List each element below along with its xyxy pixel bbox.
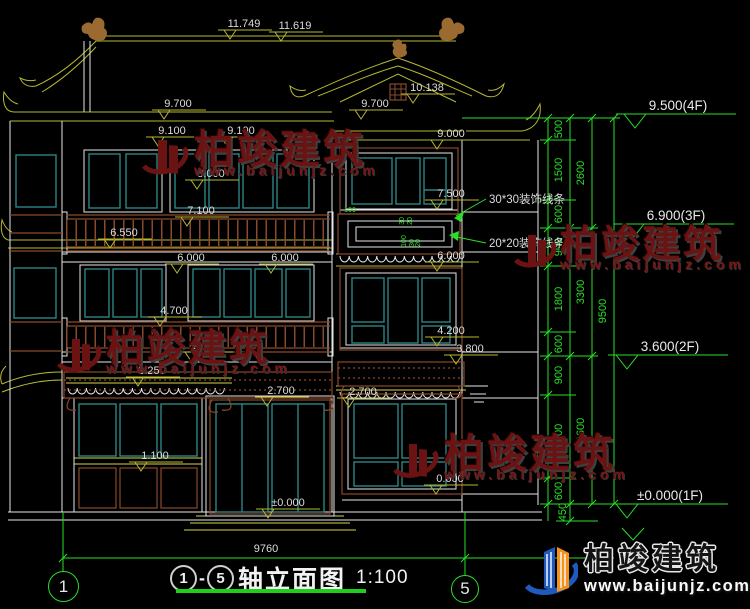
- canopy-steps-linework: [66, 378, 466, 530]
- grid-bubble-5: 5: [451, 575, 479, 603]
- elev-label: 11.619: [279, 20, 312, 32]
- elev-label: 6.550: [110, 227, 138, 239]
- elev-label: 9.700: [164, 98, 192, 110]
- floor-label: 3.600(2F): [641, 339, 700, 354]
- roof-finials: [82, 18, 465, 58]
- molding-callout: 30*30装饰线条: [489, 192, 566, 206]
- chain-dim: 600: [553, 335, 565, 353]
- elev-label: ±0.000: [271, 497, 305, 509]
- chain-dim: 3600: [575, 418, 587, 442]
- drawing-scale: 1:100: [356, 567, 409, 589]
- elev-label: 10.138: [410, 82, 444, 94]
- elev-label: 11.749: [228, 18, 261, 30]
- chain-dim: 600: [553, 205, 565, 223]
- elev-label: 4.700: [160, 305, 188, 317]
- chain-dim: 500: [553, 120, 565, 138]
- elev-label: 9.000: [437, 128, 465, 140]
- floor-label: ±0.000(1F): [637, 488, 703, 503]
- chain-dim: 450: [557, 503, 569, 521]
- molding-callout: 20*20装饰线条: [489, 236, 566, 250]
- elevation-drawing: 11.749 11.619 10.138 9.700 9.700 9.100 9…: [0, 0, 750, 609]
- mini-dim: 30: [399, 217, 406, 225]
- floor-marker-group: 9.500(4F) 6.900(3F) 3.600(2F) ±0.000(1F): [608, 98, 736, 518]
- chain-dim: 1800: [553, 287, 565, 311]
- title-underline: [176, 589, 366, 593]
- railing-frieze-linework: [10, 84, 464, 514]
- elev-label: 7.500: [437, 188, 465, 200]
- elev-label: 6.000: [177, 252, 205, 264]
- elev-label: 6.000: [271, 252, 299, 264]
- chain-dim: 2600: [575, 161, 587, 185]
- grid-bubble-1: 1: [48, 571, 79, 602]
- chain-dim: 600: [553, 482, 565, 500]
- elev-label: 6.000: [437, 250, 465, 262]
- chain-dim: 9500: [597, 299, 609, 323]
- elev-label: 7.100: [187, 205, 215, 217]
- elev-label: 1.100: [141, 450, 169, 462]
- cad-elevation-canvas: 柏竣建筑 www.baijunjz.com 柏竣建筑 www.baijunjz.…: [0, 0, 750, 609]
- elev-label: 9.100: [158, 125, 186, 137]
- elev-label: 2.700: [349, 386, 377, 398]
- overall-width-dim: 9760: [254, 543, 278, 555]
- mini-dim: 100: [401, 235, 408, 247]
- axis-bubble-start: 1: [170, 565, 197, 592]
- brand-logo: 柏竣建筑 www.baijunjz.com: [522, 540, 750, 600]
- axis-bubble-end: 5: [207, 565, 234, 592]
- elev-label: 3.800: [456, 343, 484, 355]
- chain-dim: 900: [553, 366, 565, 384]
- floor-label: 6.900(3F): [647, 208, 706, 223]
- brand-logo-name: 柏竣建筑: [584, 544, 750, 576]
- elev-label: 8.000: [197, 168, 225, 180]
- mini-dim: 20: [415, 239, 422, 247]
- axis-separator: -: [199, 568, 205, 589]
- elev-label: 9.100: [227, 125, 255, 137]
- elev-label: 4.200: [437, 325, 465, 337]
- dimension-chain-values: 500 1500 600 900 1800 600 900 2100 600 4…: [553, 120, 609, 521]
- mini-dim: 20: [407, 217, 414, 225]
- brand-logo-icon: [522, 540, 578, 600]
- elev-label: 3.250: [138, 365, 166, 377]
- chain-dim: 2100: [553, 424, 565, 448]
- floor-label: 9.500(4F): [649, 98, 708, 113]
- mini-dim: 100: [344, 207, 356, 214]
- elev-label: 9.700: [361, 98, 389, 110]
- chain-dim: 1500: [553, 158, 565, 182]
- brand-logo-url: www.baijunjz.com: [584, 577, 750, 596]
- elev-label: 2.700: [267, 385, 295, 397]
- elev-label: 0.600: [436, 473, 464, 485]
- chain-dim: 3300: [575, 280, 587, 304]
- elev-label: 3.800: [191, 340, 219, 352]
